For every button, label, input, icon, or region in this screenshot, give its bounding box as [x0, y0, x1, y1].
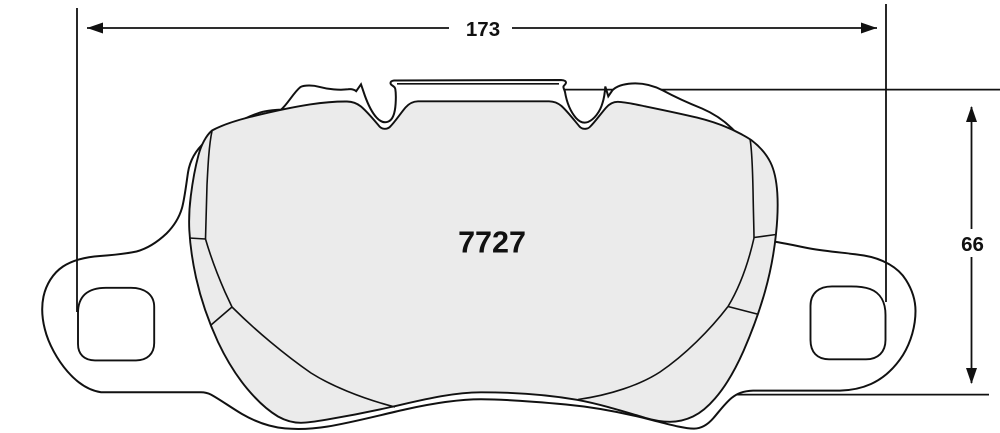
svg-text:173: 173	[466, 18, 500, 41]
svg-text:66: 66	[961, 233, 984, 256]
svg-text:7727: 7727	[458, 226, 526, 260]
